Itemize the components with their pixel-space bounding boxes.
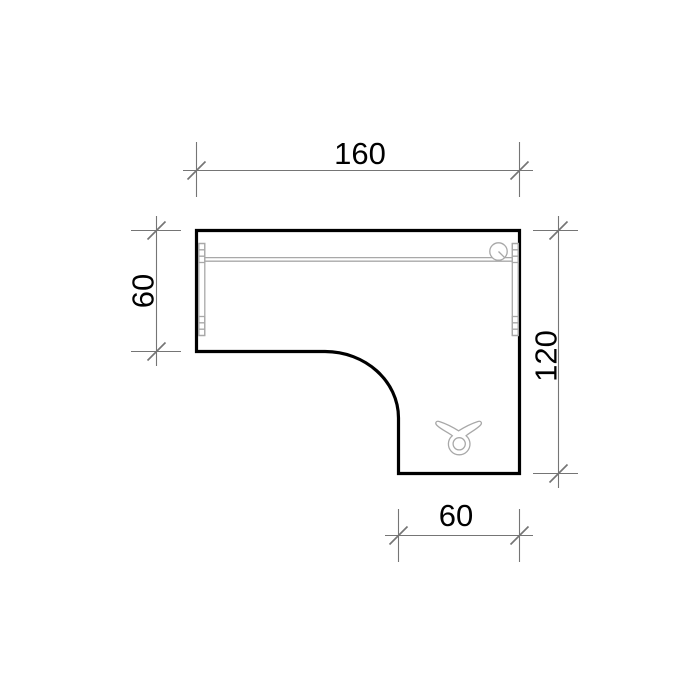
technical-drawing-canvas: 160 60 120 60 <box>0 0 700 700</box>
dimension-label-top: 160 <box>334 136 386 171</box>
dimension-bottom-width: 60 <box>385 498 533 562</box>
desk-outline <box>197 231 520 474</box>
dimension-label-right: 120 <box>529 330 564 382</box>
desk-plan-drawing: 160 60 120 60 <box>0 0 700 700</box>
cable-grommet-icon <box>490 243 507 260</box>
dimension-label-bottom: 60 <box>439 498 473 533</box>
dimension-top-width: 160 <box>183 136 533 197</box>
dimension-right-depth: 120 <box>529 216 579 488</box>
dimension-label-left: 60 <box>126 274 161 308</box>
dimension-left-depth: 60 <box>126 216 182 366</box>
